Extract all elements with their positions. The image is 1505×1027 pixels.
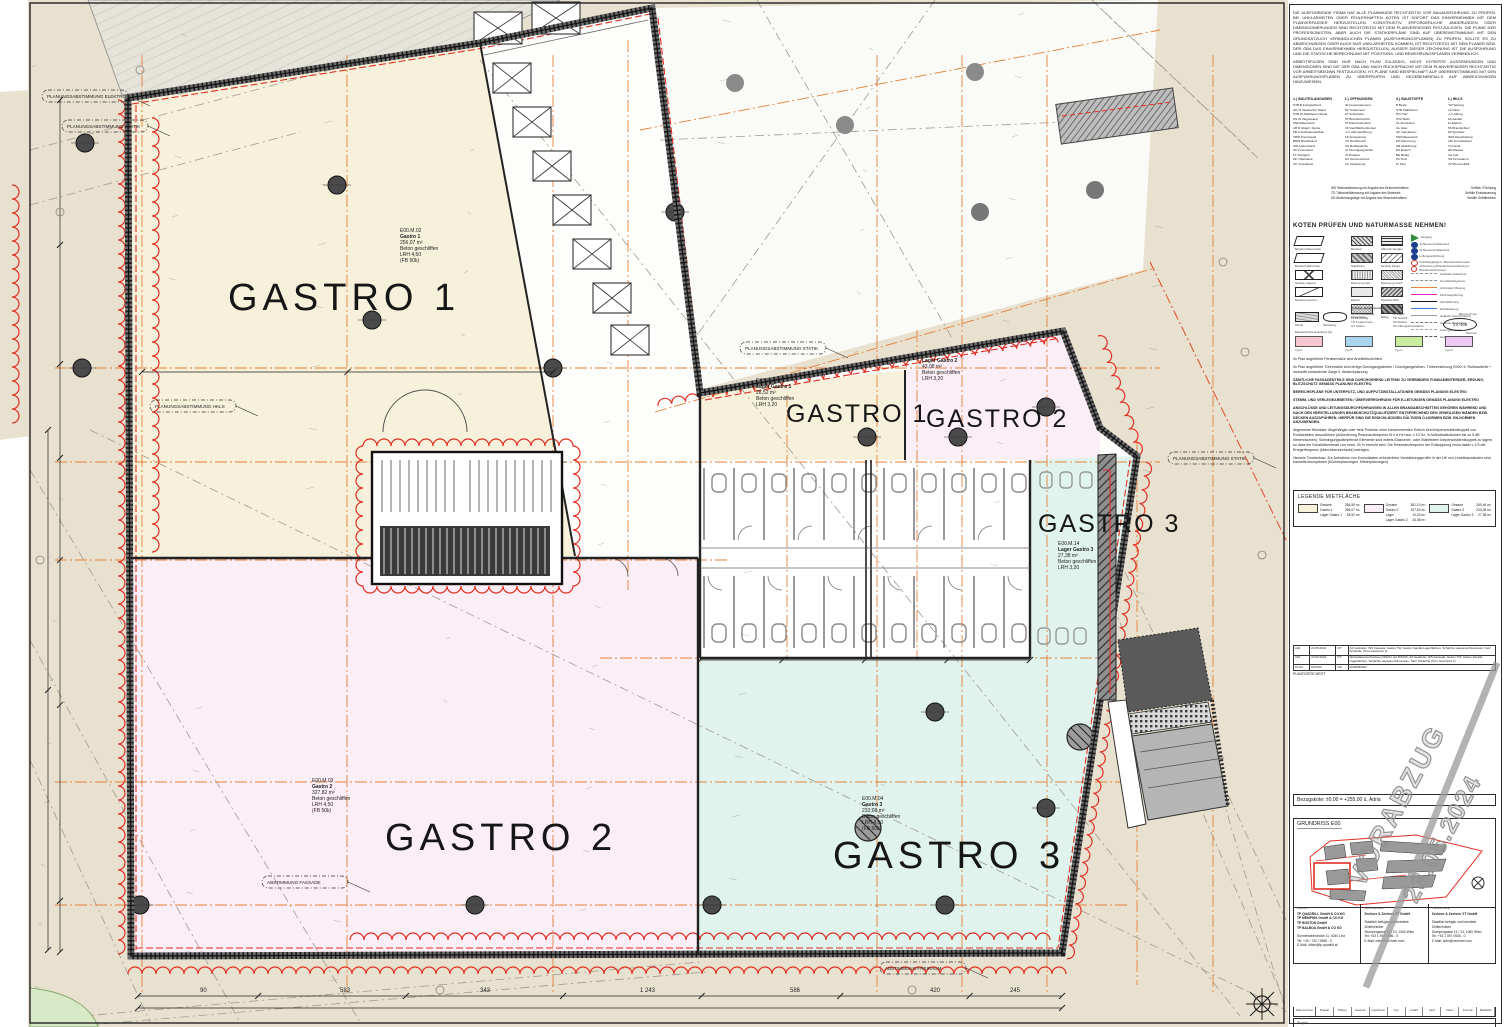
dimension-text: 343: [480, 988, 491, 994]
svg-text:(FB 50k): (FB 50k): [312, 808, 332, 814]
svg-text:(FB 50k): (FB 50k): [862, 826, 882, 832]
shaft: [533, 151, 571, 181]
mietflaeche-title: LEGENDE MIETFLÄCHE: [1298, 494, 1491, 500]
dimension-text: 245: [1010, 988, 1021, 994]
abbr-footnotes: WD Wärmedämmung mit Angabe des Brandverh…: [1293, 186, 1496, 200]
floor-plan-canvas: 905833431 243586420245PLANUNGSABSTIMMUNG…: [0, 0, 1288, 1027]
bauherr-column: Bauherr TP QUADRILL GmbH & CO KGTP MEMPH…: [1294, 904, 1361, 963]
bezugskote-strip: Bezugskote: ±0,00 = +255,00 ü. Adria: [1293, 794, 1496, 806]
svg-text:LRH 3,20: LRH 3,20: [1058, 565, 1079, 571]
title-block-panel: DIE AUSFÜHRENDE FIRMA HAT ALLE PLANMASSE…: [1288, 0, 1504, 1027]
svg-text:(FB 50k): (FB 50k): [400, 258, 420, 264]
outline-swatches: Bestand Mauerwerk Bestand abbrechen Neub…: [1295, 236, 1347, 329]
shaft-wall-band: [1098, 454, 1116, 700]
area-wc-block: [700, 460, 1030, 658]
column-existing: [836, 116, 854, 134]
abbreviation-legend: 1.) BAUTEILANGABENSTB.B FertigteilsturzG…: [1293, 97, 1496, 166]
generalplaner-column: Generalplaner Zechner & Zechner ZT GmbHS…: [1361, 904, 1428, 963]
abbr-header-3: 3.) BAUSTOFFE: [1396, 97, 1445, 102]
abbr-header-4: 4.) HKLS: [1448, 97, 1497, 102]
svg-text:ABSTIMMUNG FASSADE: ABSTIMMUNG FASSADE: [267, 880, 321, 885]
label-lager-gastro-3: GASTRO 3: [1038, 510, 1180, 538]
marker-symbols: Eingang SchleusenschalterkreisSchleusens…: [1411, 234, 1496, 272]
keyplan-title: GRUNDRISS E00: [1297, 821, 1342, 829]
disclaimer-notes: DIE AUSFÜHRENDE FIRMA HAT ALLE PLANMASSE…: [1293, 10, 1496, 85]
svg-text:LRH 3,20: LRH 3,20: [922, 376, 943, 382]
label-lager-gastro-1: GASTRO 1: [786, 400, 928, 428]
label-gastro-1: GASTRO 1: [228, 277, 460, 319]
north-arrow-icon: [1246, 988, 1278, 1020]
project-box: Projekt QUADRILL In 4020 Linz, Peter Beh…: [1293, 1018, 1496, 1027]
svg-text:PLANUNGSABSTIMMUNG STATIK: PLANUNGSABSTIMMUNG STATIK: [745, 346, 819, 351]
planfortschritt-label: PLANFORTSCHRITT: [1293, 672, 1496, 676]
shaft: [493, 63, 531, 93]
mietflaeche-legend: LEGENDE MIETFLÄCHE Gesamt284,59 m²Gastro…: [1293, 490, 1496, 527]
companies-row: Bauherr TP QUADRILL GmbH & CO KGTP MEMPH…: [1293, 904, 1496, 964]
label-gastro-3: GASTRO 3: [833, 835, 1065, 877]
label-gastro-2: GASTRO 2: [385, 817, 617, 859]
keyplan-map: [1296, 831, 1497, 907]
shaft: [593, 283, 631, 313]
column-hatched: [1067, 724, 1093, 750]
aufzug-list: Aufzüge, Baustementen AZ AufzugsanlageFL…: [1351, 306, 1431, 328]
dimension-text: 90: [200, 988, 207, 994]
svg-text:LRH 3,20: LRH 3,20: [756, 402, 777, 408]
area-gastro-2: [128, 558, 698, 956]
keyplan-box: GRUNDRISS E00: [1293, 818, 1496, 908]
shaft: [573, 239, 611, 269]
column-existing: [726, 74, 744, 92]
svg-text:ABSTIMMUNG FREIRAUM: ABSTIMMUNG FREIRAUM: [885, 966, 942, 971]
symbol-legend: Bestand Mauerwerk Bestand abbrechen Neub…: [1293, 234, 1496, 352]
type-chips: Bauabschnitte Einteilung Typ Typ ATyp BT…: [1295, 330, 1495, 354]
svg-text:PLANUNGSABSTIMMUNG STATIK: PLANUNGSABSTIMMUNG STATIK: [1173, 456, 1247, 461]
shaft: [513, 107, 551, 137]
site-left-wedge: [0, 90, 30, 440]
abbr-header-1: 1.) BAUTEILANGABEN: [1293, 97, 1342, 102]
shaft: [611, 325, 649, 355]
svg-text:PLANUNGSABSTIMMUNG ELEKTRO: PLANUNGSABSTIMMUNG ELEKTRO: [47, 94, 127, 99]
drawing-sheet: 905833431 243586420245PLANUNGSABSTIMMUNG…: [0, 0, 1505, 1027]
plannummer-strip: Plannummer ProjektPlanerGewerkGeschossTy…: [1293, 1007, 1496, 1017]
dimension-text: 583: [340, 988, 351, 994]
revision-table: A0223.05.2024DTAS Geländer, WS Fassade, …: [1293, 645, 1496, 676]
plannummer-label: Plannummer: [1294, 1007, 1316, 1016]
general-notes: Im Plan angeführte Fenstermaße sind Arch…: [1293, 357, 1496, 468]
shaft: [553, 195, 591, 225]
label-lager-gastro-2: GASTRO 2: [926, 405, 1068, 433]
dimension-text: 1 243: [640, 988, 656, 994]
dimension-text: 586: [790, 988, 801, 994]
project-label: Projekt: [1297, 1021, 1308, 1025]
abbr-header-2: 2.) ÖFFNUNGEN: [1345, 97, 1394, 102]
svg-text:PLANUNGSABSTIMMUNG HKLS: PLANUNGSABSTIMMUNG HKLS: [155, 404, 225, 409]
dimension-text: 420: [930, 988, 941, 994]
column-existing: [966, 63, 984, 81]
planverfasser-column: Planverfasser Zechner & Zechner ZT GmbHS…: [1429, 904, 1495, 963]
koten-note: KOTEN PRÜFEN UND NATURMASSE NEHMEN!: [1293, 222, 1496, 229]
